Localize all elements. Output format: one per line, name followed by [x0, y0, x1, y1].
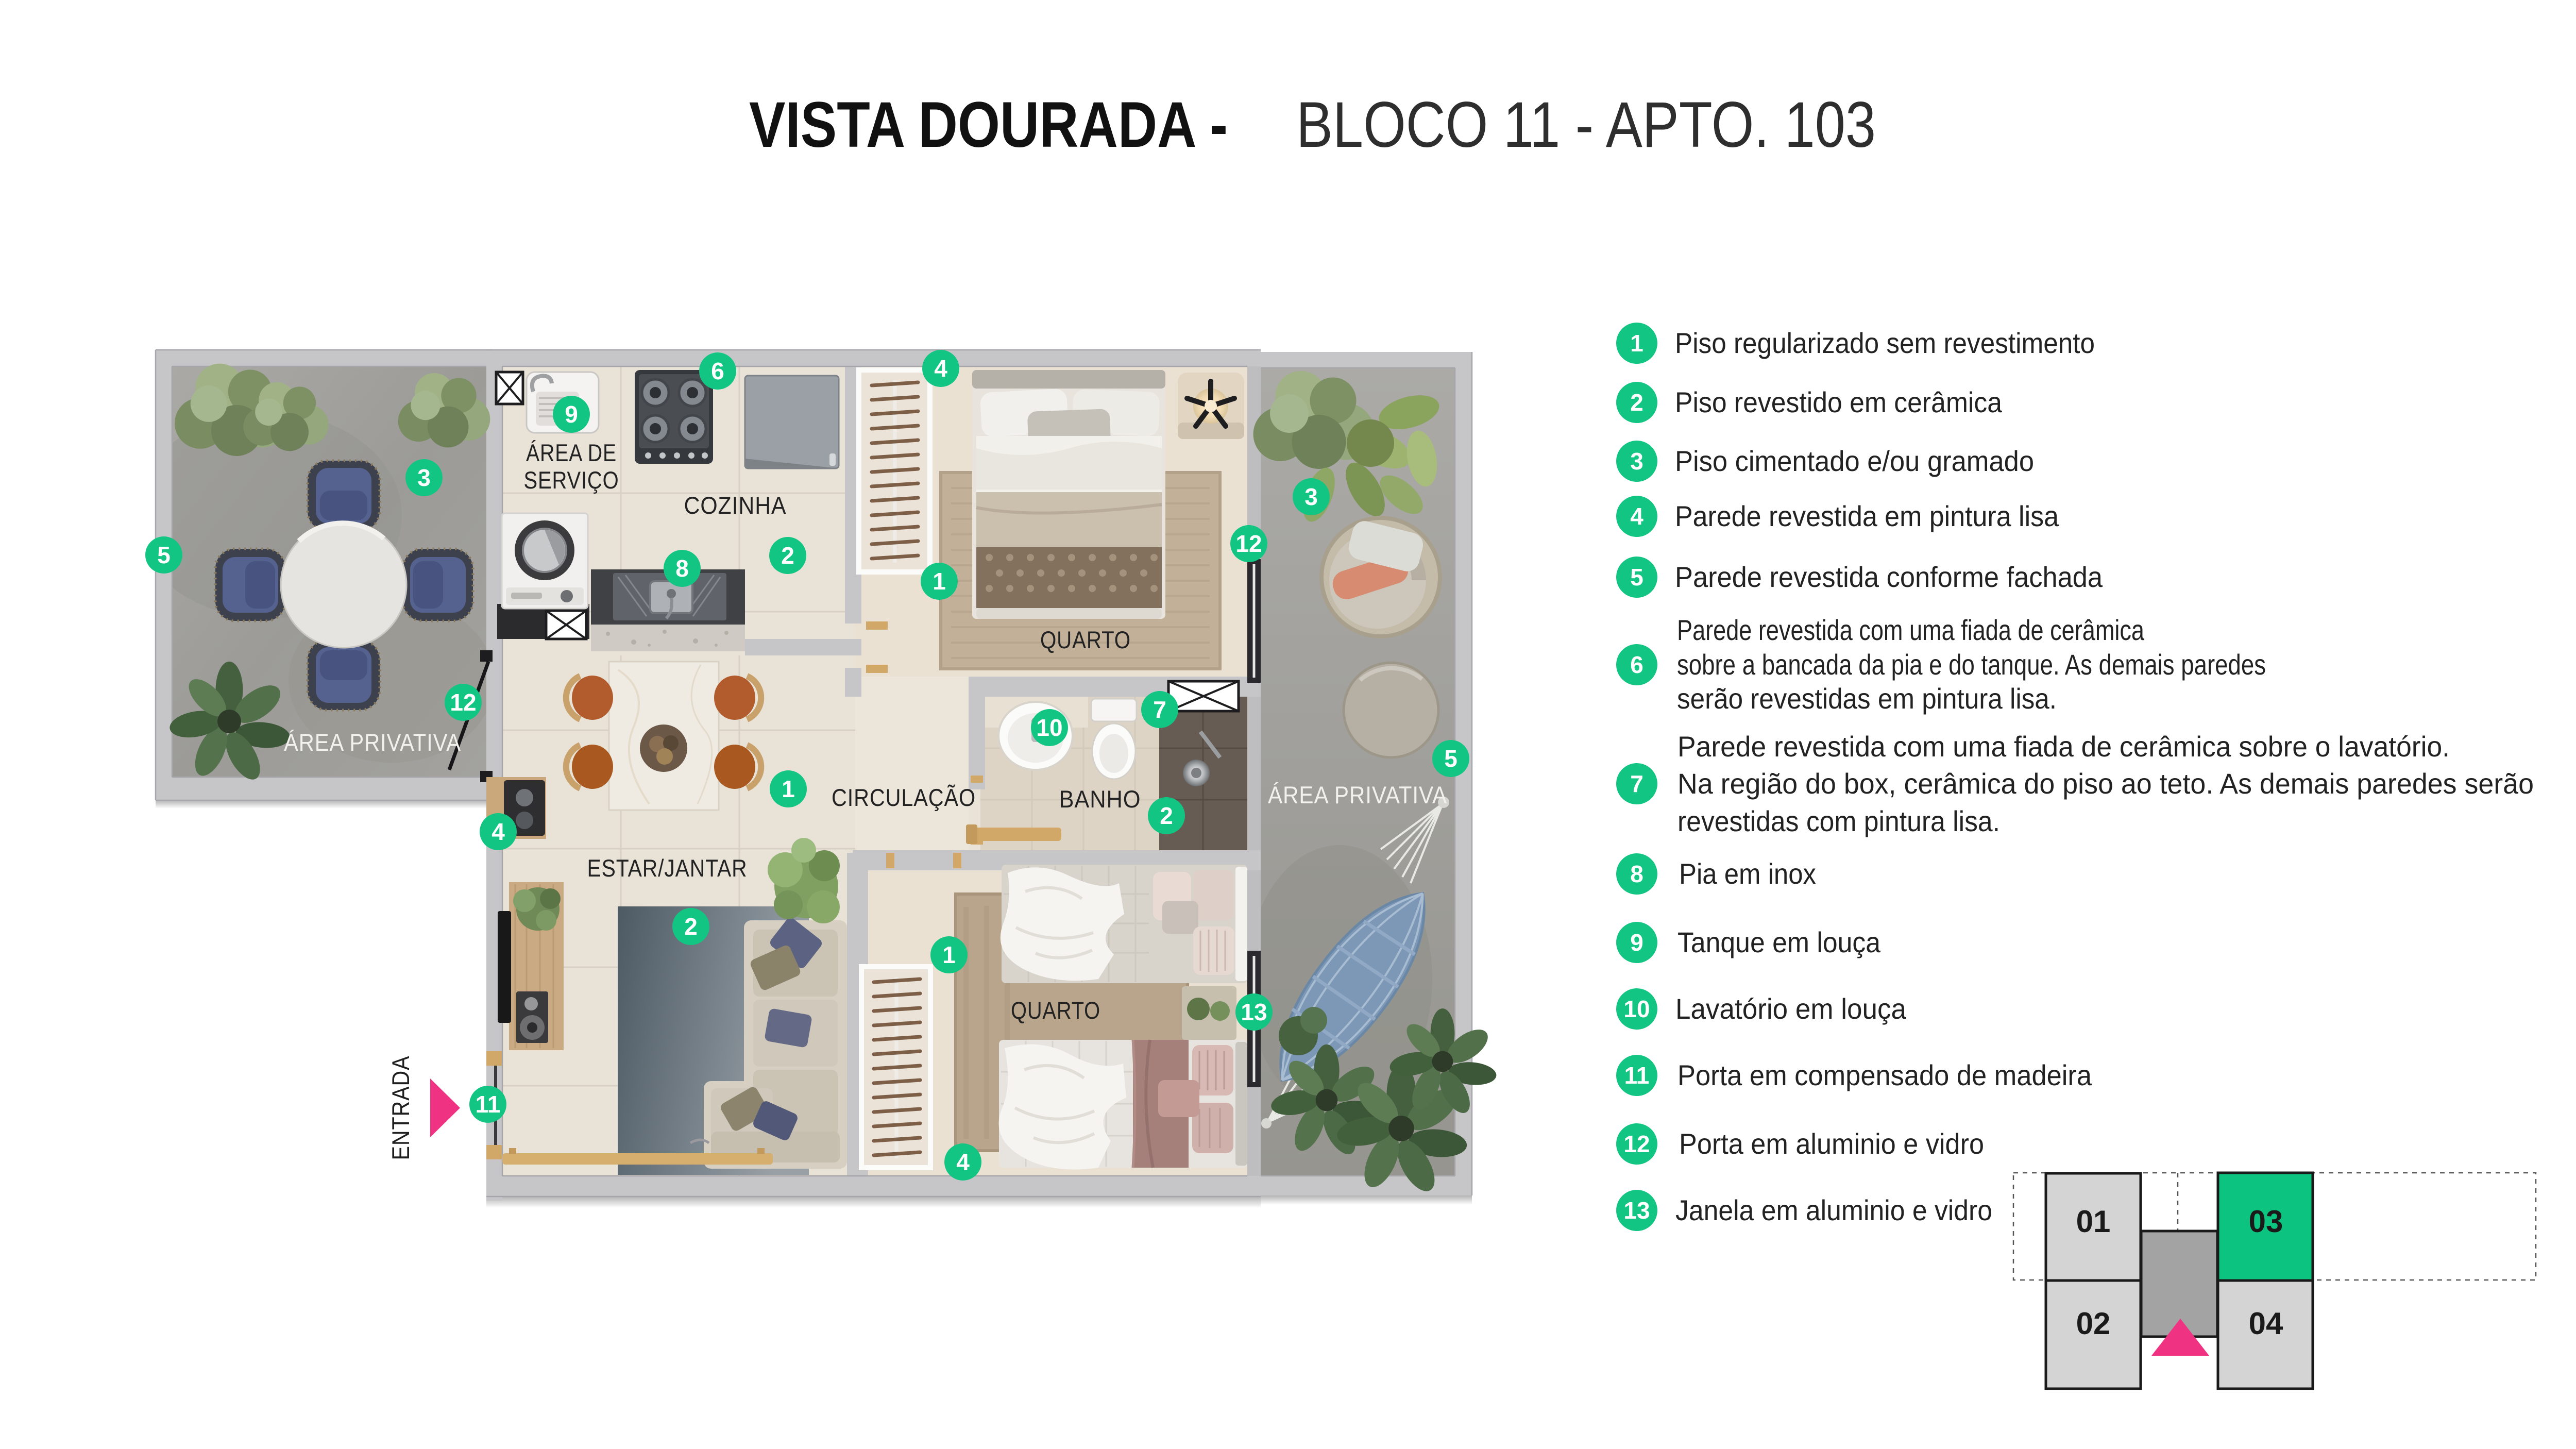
svg-text:Parede revestida com uma fiada: Parede revestida com uma fiada de cerâmi…: [1677, 614, 2145, 646]
svg-text:10: 10: [1623, 996, 1650, 1022]
svg-text:ÁREA PRIVATIVA: ÁREA PRIVATIVA: [284, 729, 461, 756]
svg-text:SERVIÇO: SERVIÇO: [524, 466, 619, 494]
svg-text:Piso regularizado sem revestim: Piso regularizado sem revestimento: [1675, 327, 2095, 359]
svg-text:02: 02: [2076, 1306, 2111, 1341]
svg-text:Porta em compensado de madeira: Porta em compensado de madeira: [1677, 1059, 2092, 1091]
svg-text:04: 04: [2249, 1306, 2283, 1341]
svg-text:1: 1: [1630, 330, 1643, 357]
svg-text:2: 2: [684, 913, 698, 940]
svg-text:Na região do box, cerâmica do: Na região do box, cerâmica do piso ao te…: [1677, 767, 2534, 800]
svg-text:2: 2: [1160, 802, 1173, 829]
svg-text:4: 4: [492, 818, 505, 845]
svg-text:11: 11: [1624, 1062, 1650, 1089]
svg-text:revestidas com pintura lisa.: revestidas com pintura lisa.: [1677, 805, 2000, 837]
svg-text:4: 4: [934, 355, 947, 382]
svg-text:Lavatório em louça: Lavatório em louça: [1675, 992, 1907, 1025]
svg-text:1: 1: [782, 776, 795, 802]
svg-text:10: 10: [1036, 714, 1062, 741]
svg-text:9: 9: [565, 401, 578, 428]
svg-text:01: 01: [2076, 1204, 2111, 1239]
svg-text:6: 6: [1630, 651, 1643, 678]
svg-text:12: 12: [1235, 530, 1262, 557]
svg-text:4: 4: [1630, 503, 1643, 530]
svg-text:8: 8: [675, 555, 689, 582]
svg-text:3: 3: [1304, 483, 1318, 510]
svg-text:4: 4: [956, 1149, 970, 1175]
svg-text:serão revestidas em pintura li: serão revestidas em pintura lisa.: [1677, 682, 2057, 715]
svg-text:1: 1: [942, 941, 956, 968]
svg-text:7: 7: [1153, 696, 1166, 723]
svg-text:VISTA DOURADA -: VISTA DOURADA -: [749, 89, 1228, 161]
svg-text:6: 6: [711, 358, 724, 384]
svg-text:2: 2: [1630, 389, 1643, 416]
svg-text:COZINHA: COZINHA: [684, 492, 787, 519]
svg-text:Parede revestida com uma fiada: Parede revestida com uma fiada de cerâmi…: [1677, 730, 2450, 763]
svg-text:Piso revestido em cerâmica: Piso revestido em cerâmica: [1675, 386, 2003, 418]
svg-text:CIRCULAÇÃO: CIRCULAÇÃO: [832, 784, 976, 811]
svg-text:Parede revestida conforme fach: Parede revestida conforme fachada: [1675, 561, 2103, 593]
svg-text:Porta em aluminio e vidro: Porta em aluminio e vidro: [1679, 1127, 1984, 1160]
svg-text:ÁREA DE: ÁREA DE: [526, 439, 617, 466]
svg-text:13: 13: [1623, 1197, 1650, 1224]
svg-text:11: 11: [476, 1091, 501, 1118]
svg-text:BANHO: BANHO: [1059, 785, 1141, 813]
svg-text:sobre a bancada da pia e do ta: sobre a bancada da pia e do tanque. As d…: [1677, 648, 2266, 681]
svg-text:Janela em aluminio e vidro: Janela em aluminio e vidro: [1675, 1194, 1992, 1226]
svg-text:QUARTO: QUARTO: [1011, 997, 1100, 1024]
svg-text:13: 13: [1241, 999, 1267, 1025]
svg-text:BLOCO 11 - APTO. 103: BLOCO 11 - APTO. 103: [1296, 89, 1876, 161]
svg-text:7: 7: [1630, 770, 1643, 797]
svg-text:ÁREA PRIVATIVA: ÁREA PRIVATIVA: [1268, 781, 1447, 808]
svg-text:5: 5: [157, 542, 171, 568]
svg-text:Pia em inox: Pia em inox: [1679, 857, 1816, 890]
svg-text:Tanque em louça: Tanque em louça: [1677, 926, 1881, 958]
svg-text:ENTRADA: ENTRADA: [387, 1056, 414, 1160]
svg-text:8: 8: [1630, 861, 1643, 887]
svg-text:Piso cimentado e/ou gramado: Piso cimentado e/ou gramado: [1675, 445, 2034, 477]
svg-text:3: 3: [417, 464, 431, 491]
svg-text:2: 2: [781, 542, 794, 569]
svg-text:03: 03: [2249, 1204, 2283, 1239]
svg-text:12: 12: [450, 689, 476, 716]
svg-text:Parede revestida em pintura li: Parede revestida em pintura lisa: [1675, 500, 2059, 532]
svg-text:ESTAR/JANTAR: ESTAR/JANTAR: [587, 854, 748, 882]
svg-text:9: 9: [1630, 929, 1643, 956]
svg-text:1: 1: [933, 568, 946, 595]
svg-text:5: 5: [1444, 745, 1458, 772]
svg-text:12: 12: [1623, 1131, 1650, 1157]
svg-text:3: 3: [1630, 448, 1643, 475]
svg-text:5: 5: [1630, 564, 1643, 591]
svg-text:QUARTO: QUARTO: [1040, 626, 1131, 653]
